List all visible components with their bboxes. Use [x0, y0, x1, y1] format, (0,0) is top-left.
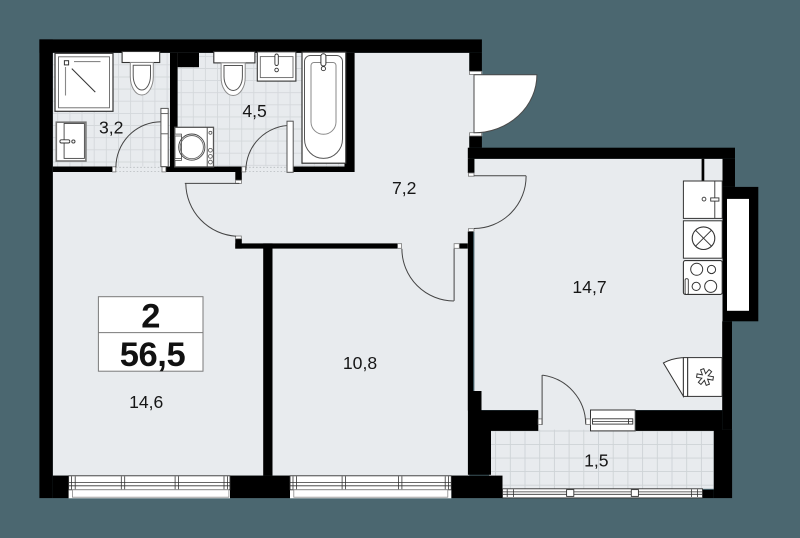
svg-text:7,2: 7,2	[392, 178, 416, 198]
svg-text:14,6: 14,6	[129, 392, 163, 412]
svg-text:10,8: 10,8	[343, 353, 377, 373]
svg-text:3,2: 3,2	[99, 118, 123, 138]
svg-text:14,7: 14,7	[572, 277, 606, 297]
svg-text:2: 2	[141, 298, 160, 336]
svg-text:4,5: 4,5	[242, 101, 267, 121]
svg-text:56,5: 56,5	[120, 336, 186, 374]
svg-text:1,5: 1,5	[584, 450, 609, 470]
